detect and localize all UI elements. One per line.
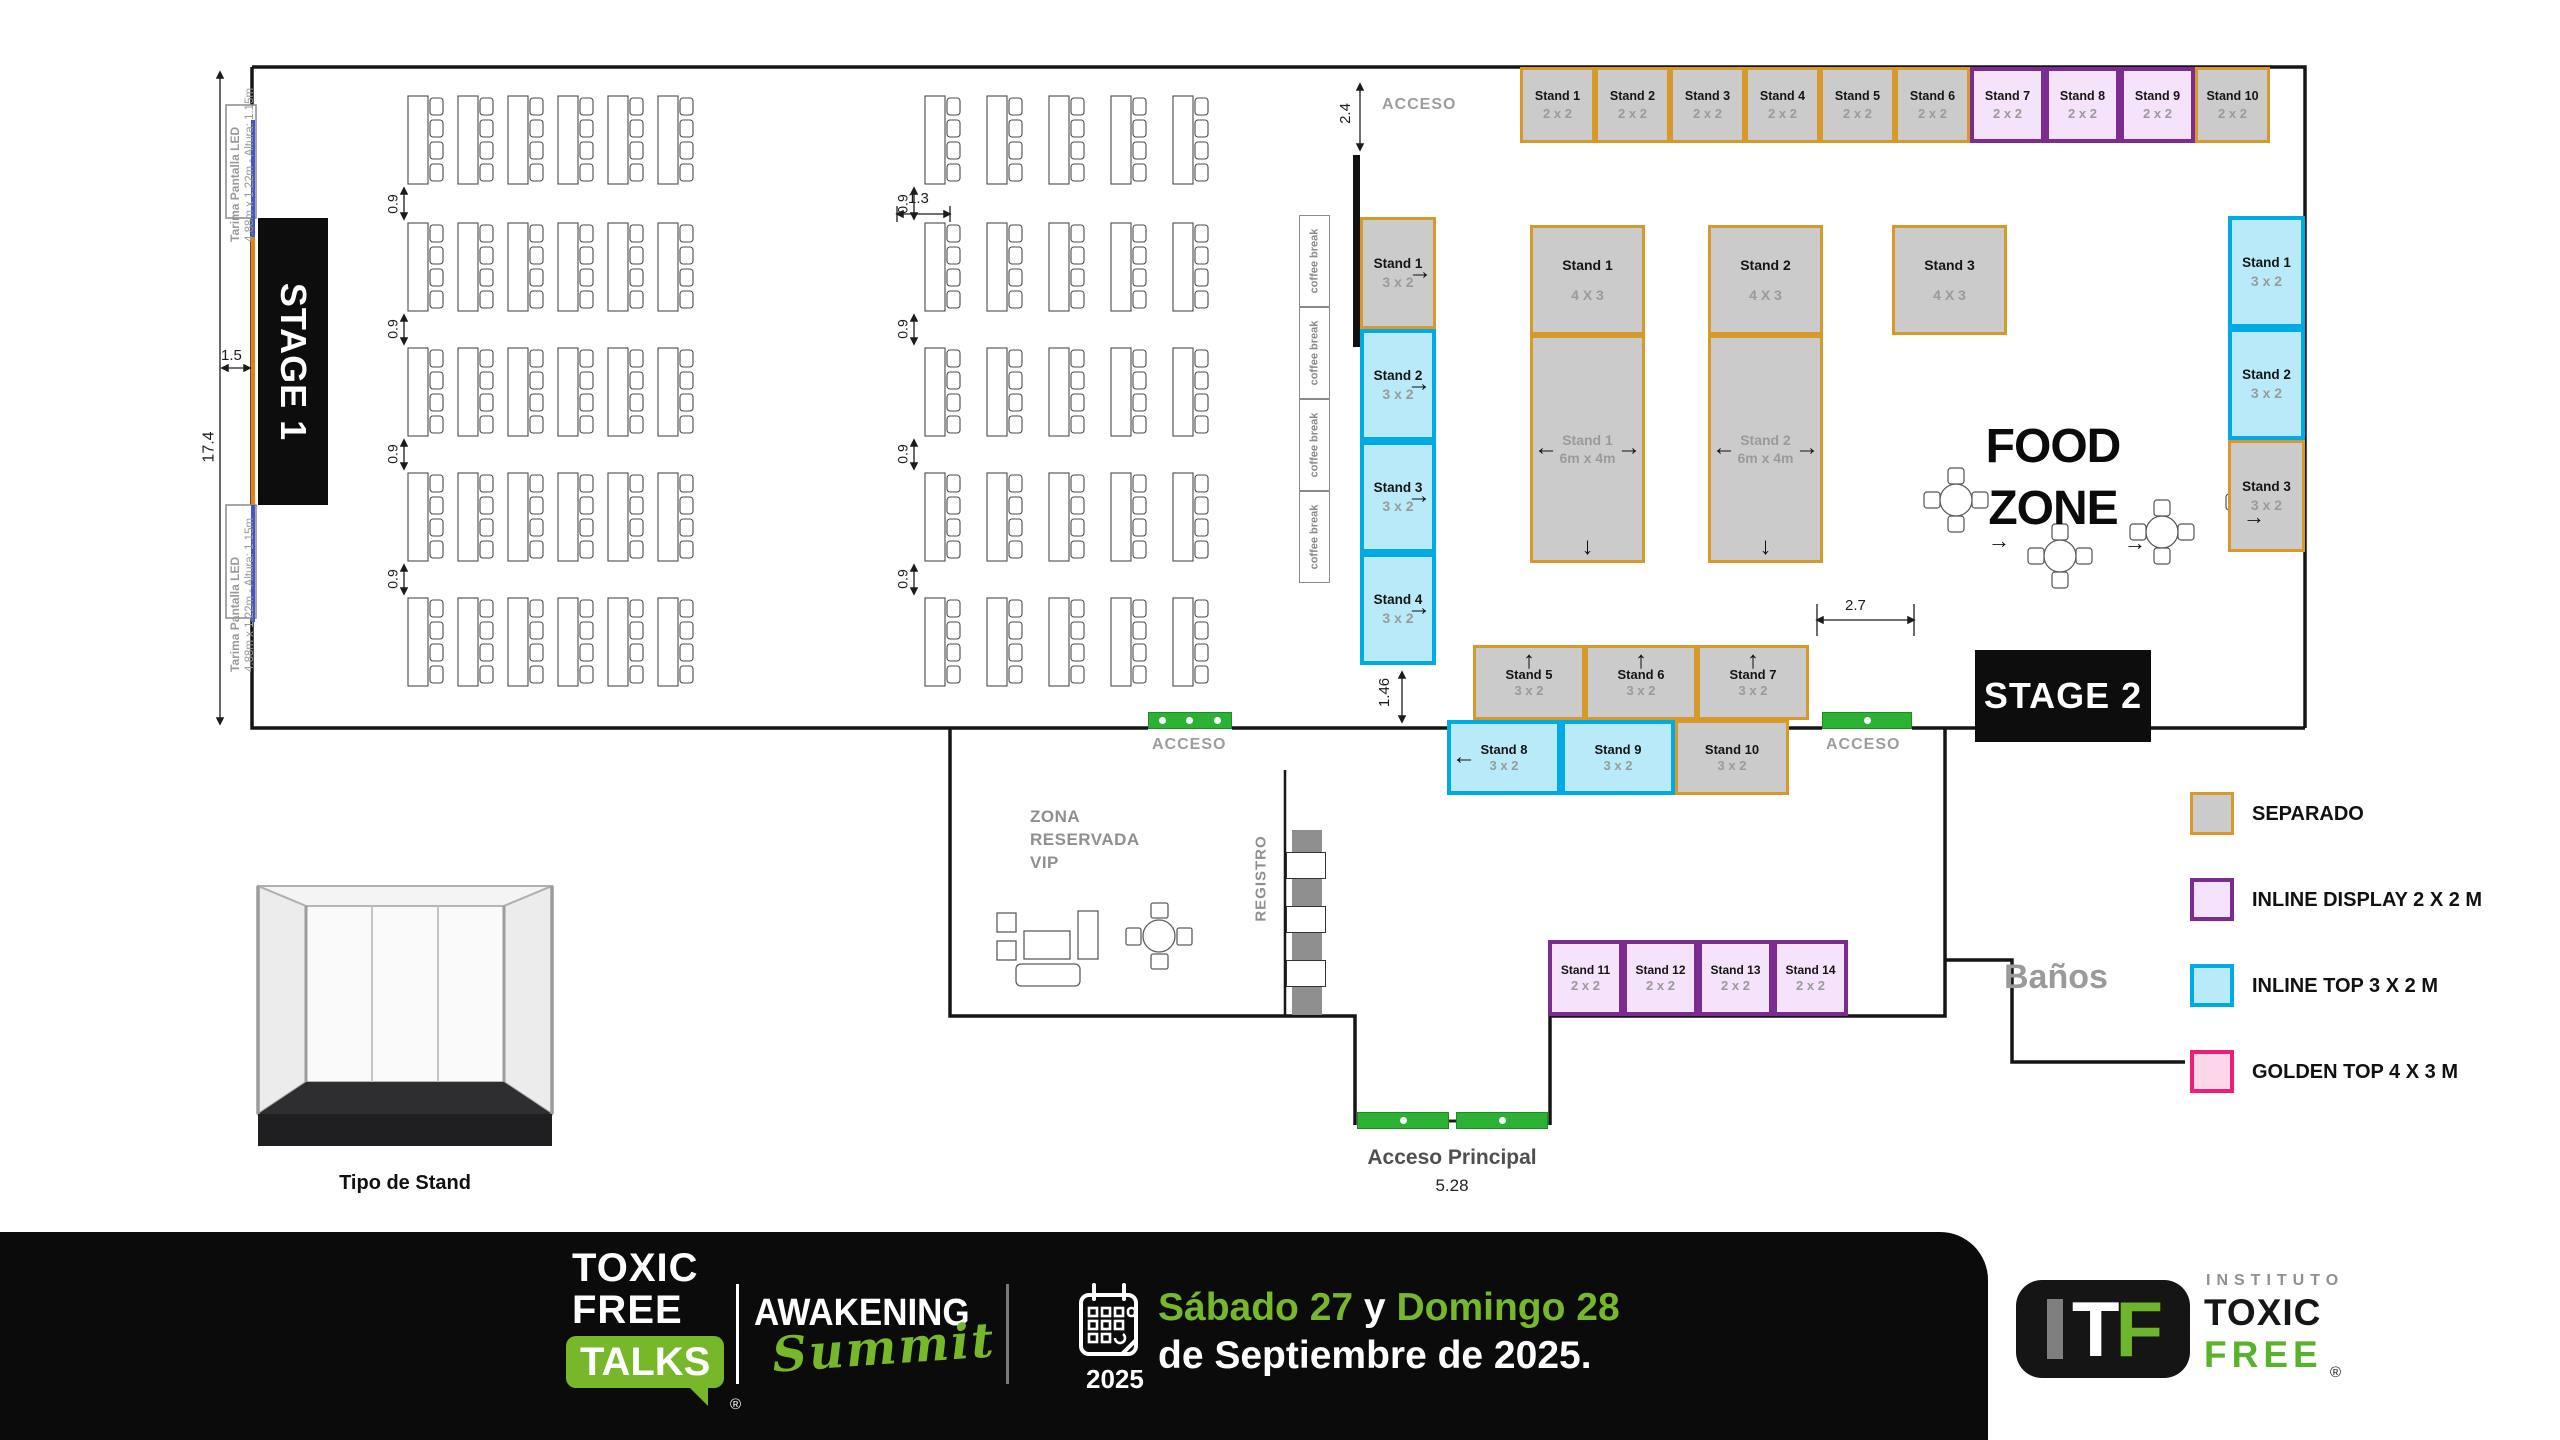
registro-label: REGISTRO <box>1253 834 1270 924</box>
tarima-label: Tarima Pantalla LED 4.88m x 1.22m - Altu… <box>228 518 257 672</box>
itf-logo: T F <box>2016 1280 2190 1378</box>
dimension-label: 0.9 <box>385 569 401 588</box>
stand-center-large-3: Stand 34 X 3 <box>1892 225 2007 335</box>
footer-divider <box>736 1284 739 1384</box>
stand-top-row-4: Stand 42 x 2 <box>1745 67 1820 143</box>
footer-divider <box>1006 1284 1009 1384</box>
event-year: 2025 <box>1086 1364 1144 1395</box>
stage-1-label: STAGE 1 <box>272 282 314 440</box>
stand-lobby-row-1: Stand 112 x 2 <box>1548 940 1623 1016</box>
stand-size: 3 x 2 <box>1718 759 1747 772</box>
stand-name: Stand 6 <box>1910 90 1955 103</box>
stand-size: 2 x 2 <box>2218 107 2247 120</box>
stand-size: 3 x 2 <box>1627 684 1656 697</box>
stand-bottom-upper-3: Stand 73 x 2↑ <box>1697 645 1809 720</box>
dimension-label: 0.9 <box>385 319 401 338</box>
arrow-right-icon: → <box>1988 528 2010 554</box>
stand-right-column-1: Stand 13 x 2 <box>2228 216 2305 328</box>
coffee-break-box: coffee break <box>1299 307 1330 399</box>
stand-center-separado-1: Stand 16m x 4m←→↓ <box>1530 335 1645 563</box>
stand-name: Stand 3 <box>2242 480 2291 494</box>
stage-2-label: STAGE 2 <box>1984 675 2142 717</box>
audience-seating <box>408 96 1208 686</box>
stand-top-row-6: Stand 62 x 2 <box>1895 67 1970 143</box>
stand-size: 6m x 4m <box>1559 451 1615 465</box>
legend-label: GOLDEN TOP 4 X 3 M <box>2252 1061 2458 1084</box>
arrow-left-icon: ← <box>1534 436 1558 460</box>
arrow-down-icon: ↓ <box>1582 535 1594 559</box>
coffee-break-box: coffee break <box>1299 491 1330 583</box>
access-door <box>1456 1112 1548 1129</box>
dimension-label: 2.7 <box>1845 597 1866 614</box>
stand-name: Stand 12 <box>1635 964 1685 977</box>
stand-bottom-lower-2: Stand 93 x 2 <box>1561 720 1675 795</box>
stand-size: 3 x 2 <box>1739 684 1768 697</box>
registered-mark: ® <box>730 1396 741 1413</box>
stand-name: Stand 14 <box>1785 964 1835 977</box>
logo-free: FREE <box>572 1290 683 1330</box>
stand-name: Stand 2 <box>1740 258 1791 273</box>
stand-right-column-3: Stand 33 x 2 <box>2228 440 2305 552</box>
stage-1: STAGE 1 <box>258 218 328 505</box>
registro-counter <box>1286 960 1326 987</box>
itf-logo-i <box>2047 1299 2063 1359</box>
stand-bottom-lower-1: Stand 83 x 2← <box>1447 720 1561 795</box>
arrow-up-icon: ↑ <box>1635 649 1647 673</box>
stand-size: 4 X 3 <box>1749 288 1782 302</box>
stand-size: 6m x 4m <box>1737 451 1793 465</box>
stand-lobby-row-2: Stand 122 x 2 <box>1623 940 1698 1016</box>
itf-logo-t: T <box>2072 1296 2116 1362</box>
acceso-principal-label: Acceso Principal <box>1352 1146 1552 1170</box>
stand-top-row-10: Stand 102 x 2 <box>2195 67 2270 143</box>
stand-name: Stand 8 <box>2060 90 2105 103</box>
stand-size: 3 x 2 <box>1515 684 1544 697</box>
dimension-label: 0.9 <box>895 444 911 463</box>
acceso-bottom-label: ACCESO <box>1152 736 1226 754</box>
registro-counter <box>1286 906 1326 933</box>
arrow-right-icon: → <box>1617 436 1641 460</box>
arrow-right-icon: → <box>2124 530 2146 556</box>
arrow-right-icon: → <box>2243 504 2265 530</box>
legend-label: INLINE TOP 3 X 2 M <box>2252 975 2438 998</box>
access-door <box>1148 712 1232 729</box>
stand-size: 2 x 2 <box>1796 979 1825 992</box>
talks-badge: TALKS <box>566 1336 724 1388</box>
stand-center-separado-2: Stand 26m x 4m←→↓ <box>1708 335 1823 563</box>
event-date-line1: Sábado 27 y Domingo 28 <box>1158 1288 1620 1327</box>
coffee-break-box: coffee break <box>1299 215 1330 307</box>
legend-swatch-ind <box>2190 878 2234 921</box>
stand-size: 2 x 2 <box>1571 979 1600 992</box>
stand-top-row-1: Stand 12 x 2 <box>1520 67 1595 143</box>
vip-zone-label: ZONA RESERVADA VIP <box>1030 806 1140 875</box>
arrow-right-icon: → <box>1407 596 1431 620</box>
dimension-label: 0.9 <box>385 194 401 213</box>
coffee-break-box: coffee break <box>1299 399 1330 491</box>
stand-size: 4 X 3 <box>1571 288 1604 302</box>
dimension-label: 1.5 <box>221 347 242 364</box>
arrow-right-icon: → <box>1407 484 1431 508</box>
vip-furniture <box>997 903 1192 986</box>
tarima-label: Tarima Pantalla LED 4.88m x 1.22m - Altu… <box>228 88 257 242</box>
stand-name: Stand 3 <box>1924 258 1975 273</box>
registro-counter <box>1286 852 1326 879</box>
stand-size: 3 x 2 <box>2251 386 2282 400</box>
entrance-width-label: 5.28 <box>1352 1176 1552 1196</box>
stand-size: 4 X 3 <box>1933 288 1966 302</box>
arrow-right-icon: → <box>1407 372 1431 396</box>
stand-name: Stand 2 <box>1610 90 1655 103</box>
legend-swatch-gld <box>2190 1050 2234 1093</box>
stand-left-column-3: Stand 33 x 2→ <box>1360 441 1436 553</box>
stand-name: Stand 8 <box>1481 743 1528 757</box>
stand-size: 2 x 2 <box>1721 979 1750 992</box>
dimension-label: 1.46 <box>1376 678 1393 707</box>
stand-name: Stand 3 <box>1685 90 1730 103</box>
stand-name: Stand 2 <box>2242 368 2291 382</box>
dimension-label: 17.4 <box>201 431 219 462</box>
stand-name: Stand 9 <box>2135 90 2180 103</box>
event-date-line2: de Septiembre de 2025. <box>1158 1336 1592 1375</box>
arrow-right-icon: → <box>1795 436 1819 460</box>
dimension-label: 0.9 <box>895 319 911 338</box>
stand-name: Stand 11 <box>1561 964 1610 977</box>
stand-lobby-row-3: Stand 132 x 2 <box>1698 940 1773 1016</box>
itf-logo-f: F <box>2116 1296 2160 1362</box>
stand-bottom-upper-2: Stand 63 x 2↑ <box>1585 645 1697 720</box>
food-zone-label: FOOD ZONE <box>1938 416 2168 541</box>
stand-name: Stand 1 <box>1562 258 1613 273</box>
floor-plan-drawing <box>0 0 2560 1440</box>
acceso-stage2-label: ACCESO <box>1826 736 1900 754</box>
stand-bottom-lower-3: Stand 103 x 2 <box>1675 720 1789 795</box>
stand-name: Stand 1 <box>1562 433 1613 448</box>
legend-swatch-int <box>2190 964 2234 1007</box>
stand-top-row-3: Stand 32 x 2 <box>1670 67 1745 143</box>
access-door <box>1357 1112 1449 1129</box>
logo-toxic: TOXIC <box>572 1248 699 1288</box>
stand-name: Stand 13 <box>1710 964 1760 977</box>
stand-bottom-upper-1: Stand 53 x 2↑ <box>1473 645 1585 720</box>
acceso-top-label: ACCESO <box>1382 96 1456 114</box>
stand-size: 3 x 2 <box>2251 274 2282 288</box>
stand-size: 2 x 2 <box>1843 107 1872 120</box>
stand-size: 2 x 2 <box>1646 979 1675 992</box>
stand-left-column-4: Stand 43 x 2→ <box>1360 553 1436 665</box>
dimension-label: 2.4 <box>1337 103 1354 124</box>
dimension-label: 0.9 <box>895 569 911 588</box>
stand-top-row-2: Stand 22 x 2 <box>1595 67 1670 143</box>
arrow-up-icon: ↑ <box>1747 649 1759 673</box>
stand-name: Stand 7 <box>1985 90 2030 103</box>
stand-name: Stand 5 <box>1835 90 1880 103</box>
dimension-label: 0.9 <box>385 444 401 463</box>
legend-label: INLINE DISPLAY 2 X 2 M <box>2252 889 2482 912</box>
stand-size: 2 x 2 <box>1993 107 2022 120</box>
stand-size: 2 x 2 <box>1768 107 1797 120</box>
stand-top-row-7: Stand 72 x 2 <box>1970 67 2045 143</box>
stand-center-large-2: Stand 24 X 3 <box>1708 225 1823 335</box>
stand-size: 2 x 2 <box>1693 107 1722 120</box>
stand-name: Stand 1 <box>2242 256 2291 270</box>
stand-lobby-row-4: Stand 142 x 2 <box>1773 940 1848 1016</box>
stand-top-row-5: Stand 52 x 2 <box>1820 67 1895 143</box>
banos-label: Baños <box>2004 958 2108 997</box>
stand-size: 2 x 2 <box>1543 107 1572 120</box>
stand-size: 2 x 2 <box>2143 107 2172 120</box>
legend-label: SEPARADO <box>2252 803 2364 826</box>
stand-size: 3 x 2 <box>1490 759 1519 772</box>
booth-illustration <box>258 886 552 1146</box>
stand-top-row-8: Stand 82 x 2 <box>2045 67 2120 143</box>
stand-name: Stand 1 <box>1535 90 1580 103</box>
stand-top-row-9: Stand 92 x 2 <box>2120 67 2195 143</box>
arrow-down-icon: ↓ <box>1760 535 1772 559</box>
stand-name: Stand 10 <box>2206 90 2258 103</box>
stand-size: 3 x 2 <box>1604 759 1633 772</box>
legend-swatch-sep <box>2190 792 2234 835</box>
stand-left-column-1: Stand 13 x 2→ <box>1360 217 1436 329</box>
stand-size: 2 x 2 <box>2068 107 2097 120</box>
arrow-left-icon: ← <box>1452 744 1476 768</box>
stand-size: 2 x 2 <box>1618 107 1647 120</box>
stand-name: Stand 10 <box>1705 743 1759 757</box>
access-door <box>1822 712 1912 729</box>
arrow-right-icon: → <box>1408 260 1432 284</box>
stand-size: 2 x 2 <box>1918 107 1947 120</box>
stand-right-column-2: Stand 23 x 2 <box>2228 328 2305 440</box>
dimension-label: 0.9 <box>895 194 911 213</box>
partition-wall <box>1353 155 1360 347</box>
arrow-up-icon: ↑ <box>1523 649 1535 673</box>
floor-plan-page: STAGE 1 STAGE 2 FOOD ZONE Baños ACCESO A… <box>0 0 2560 1440</box>
stand-name: Stand 2 <box>1740 433 1791 448</box>
stand-left-column-2: Stand 23 x 2→ <box>1360 329 1436 441</box>
dimension-label: 1.3 <box>908 190 929 207</box>
calendar-icon <box>1076 1280 1142 1360</box>
stand-name: Stand 9 <box>1595 743 1642 757</box>
arrow-left-icon: ← <box>1712 436 1736 460</box>
stand-center-large-1: Stand 14 X 3 <box>1530 225 1645 335</box>
stage-2: STAGE 2 <box>1975 650 2151 742</box>
booth-type-label: Tipo de Stand <box>290 1172 520 1195</box>
stand-name: Stand 4 <box>1760 90 1805 103</box>
